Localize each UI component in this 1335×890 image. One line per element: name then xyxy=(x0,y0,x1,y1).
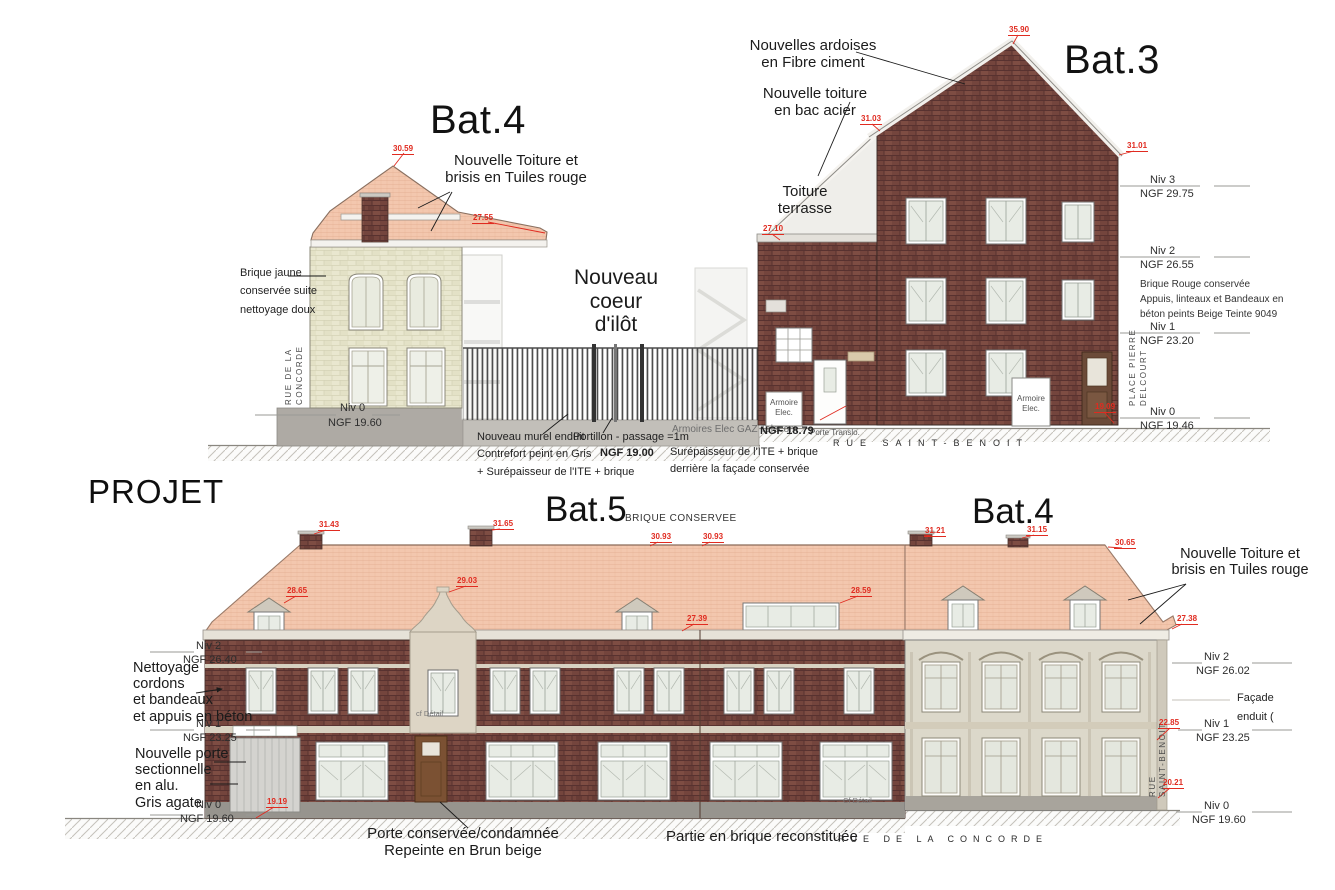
marker-30-59: 30.59 xyxy=(392,145,414,155)
marker-31-21: 31.21 xyxy=(924,527,946,537)
bat4-niv0-ngf: NGF 19.60 xyxy=(328,417,382,429)
niv1-label: Niv 1 xyxy=(1150,321,1175,333)
chimney xyxy=(300,533,322,549)
niv0-ngf: NGF 19.46 xyxy=(1140,420,1194,432)
br-niv0-ngf: NGF 19.60 xyxy=(1192,814,1246,826)
b-niv2-label: Niv 2 xyxy=(196,640,221,652)
niv2-ngf: NGF 26.55 xyxy=(1140,259,1194,271)
br-niv1-label: Niv 1 xyxy=(1204,718,1229,730)
rue-concorde-vertical-2: CONCORDE xyxy=(296,345,305,404)
b-niv0-ngf: NGF 19.60 xyxy=(180,813,234,825)
place-delcourt-vertical-2: DELCOURT xyxy=(1140,349,1149,406)
marker-31-01: 31.01 xyxy=(1126,142,1148,152)
bat5-subtitle: BRIQUE CONSERVEE xyxy=(625,513,737,524)
marker-30-93a: 30.93 xyxy=(650,533,672,543)
nettoyage-note: Nettoyagecordons et bandeauxet appuis en… xyxy=(133,660,252,725)
bat4-niv0-label: Niv 0 xyxy=(340,402,365,414)
porte-translo-label: Porte Translo. xyxy=(810,429,860,438)
bat5-building xyxy=(203,526,907,818)
facade-note-2: enduit ( xyxy=(1237,711,1274,723)
brique-jaune-note: Brique jaune conservée suite nettoyage d… xyxy=(240,267,317,316)
bat3-title: Bat.3 xyxy=(1064,38,1160,83)
marker-31-03: 31.03 xyxy=(860,115,882,125)
marker-31-15: 31.15 xyxy=(1026,526,1048,536)
projet-title: PROJET xyxy=(88,474,224,511)
cf-detail-label-2: Cf Détail xyxy=(843,797,872,805)
portillon-ngf: NGF 19.00 xyxy=(600,447,654,459)
br-niv1-ngf: NGF 23.25 xyxy=(1196,732,1250,744)
marker-27-10: 27.10 xyxy=(762,225,784,235)
cf-detail-label-1: cf Détail xyxy=(416,710,443,718)
bat4-top-chimney xyxy=(362,196,388,242)
marker-27-39: 27.39 xyxy=(686,615,708,625)
niv1-ngf: NGF 23.20 xyxy=(1140,335,1194,347)
caption-porte-conservee: Porte conservée/condamnéeRepeinte en Bru… xyxy=(367,826,559,860)
armoire-elec-label: ArmoireElec. xyxy=(1016,394,1046,413)
marker-19-19: 19.19 xyxy=(266,798,288,808)
marker-29-03: 29.03 xyxy=(456,577,478,587)
marker-27-38: 27.38 xyxy=(1176,615,1198,625)
caption-brique-reconstituee: Partie en brique reconstituée xyxy=(666,829,858,846)
place-delcourt-vertical-1: PLACE PIERRE xyxy=(1129,329,1138,406)
marker-28-65: 28.65 xyxy=(286,587,308,597)
ardoises-note: Nouvelles ardoisesen Fibre ciment xyxy=(750,38,877,72)
chimney xyxy=(470,528,492,546)
brique-rouge-note: Brique Rouge conservée Appuis, linteaux … xyxy=(1140,279,1283,321)
bat4-bottom-building xyxy=(903,531,1176,810)
bat4-roof-note: Nouvelle Toiture etbrisis en Tuiles roug… xyxy=(445,153,587,187)
rue-sb-vertical-1: RUE xyxy=(1149,775,1158,797)
gate-post xyxy=(592,344,596,422)
surepaisseur-note: Surépaisseur de l'ITE + brique derrière … xyxy=(670,446,818,476)
wing-window-grid xyxy=(776,328,812,362)
b-niv1-ngf: NGF 23.25 xyxy=(183,732,237,744)
sectional-door xyxy=(230,738,300,812)
marker-28-59: 28.59 xyxy=(850,587,872,597)
armoires-ngf: NGF 18.79 xyxy=(760,425,814,437)
marker-30-65: 30.65 xyxy=(1114,539,1136,549)
elevation-sheet: Bat.4 Bat.3 PROJET Bat.5 BRIQUE CONSERVE… xyxy=(0,0,1335,890)
bat5-title: Bat.5 xyxy=(545,490,627,529)
rue-saint-benoit-street: RUE SAINT-BENOIT xyxy=(833,438,1029,448)
marker-31-65: 31.65 xyxy=(492,520,514,530)
niv3-ngf: NGF 29.75 xyxy=(1140,188,1194,200)
coeur-ilot-note: Nouveaucoeurd'ilôt xyxy=(574,266,658,337)
br-niv2-ngf: NGF 26.02 xyxy=(1196,665,1250,677)
marker-19-09: 19.09 xyxy=(1094,403,1116,413)
b-niv2-ngf: NGF 26.40 xyxy=(183,654,237,666)
marker-35-90: 35.90 xyxy=(1008,26,1030,36)
bat5-cornice xyxy=(203,630,907,640)
wing-parapet xyxy=(757,234,879,242)
rue-concorde-vertical-1: RUE DE LA xyxy=(285,348,294,405)
courtyard-fence xyxy=(463,344,758,422)
armoire-elec-label: ArmoireElec. xyxy=(770,398,798,417)
b-niv0-label: Niv 0 xyxy=(196,799,221,811)
marker-30-93b: 30.93 xyxy=(702,533,724,543)
b-niv1-label: Niv 1 xyxy=(196,718,221,730)
marker-31-43: 31.43 xyxy=(318,521,340,531)
chimney xyxy=(1008,537,1028,547)
bat4-bottom-roof xyxy=(905,545,1176,630)
bac-acier-note: Nouvelle toitureen bac acier xyxy=(763,86,867,120)
facade-note-1: Façade xyxy=(1237,692,1274,704)
niv0-label: Niv 0 xyxy=(1150,406,1175,418)
bat4-bottom-roof-note: Nouvelle Toiture etbrisis en Tuiles roug… xyxy=(1171,546,1308,578)
br-niv0-label: Niv 0 xyxy=(1204,800,1229,812)
br-niv2-label: Niv 2 xyxy=(1204,651,1229,663)
marker-27-55: 27.55 xyxy=(472,214,494,224)
niv2-label: Niv 2 xyxy=(1150,245,1175,257)
bat4-top-title: Bat.4 xyxy=(430,98,526,143)
bat4-cornice xyxy=(903,630,1169,640)
gate-post xyxy=(640,344,644,422)
niv3-label: Niv 3 xyxy=(1150,174,1175,186)
toiture-terrasse-note: Toitureterrasse xyxy=(778,184,832,218)
rue-concorde-street: RUE DE LA CONCORDE xyxy=(838,834,1048,844)
rue-sb-vertical-2: SAINT-BENOIT xyxy=(1159,722,1168,797)
